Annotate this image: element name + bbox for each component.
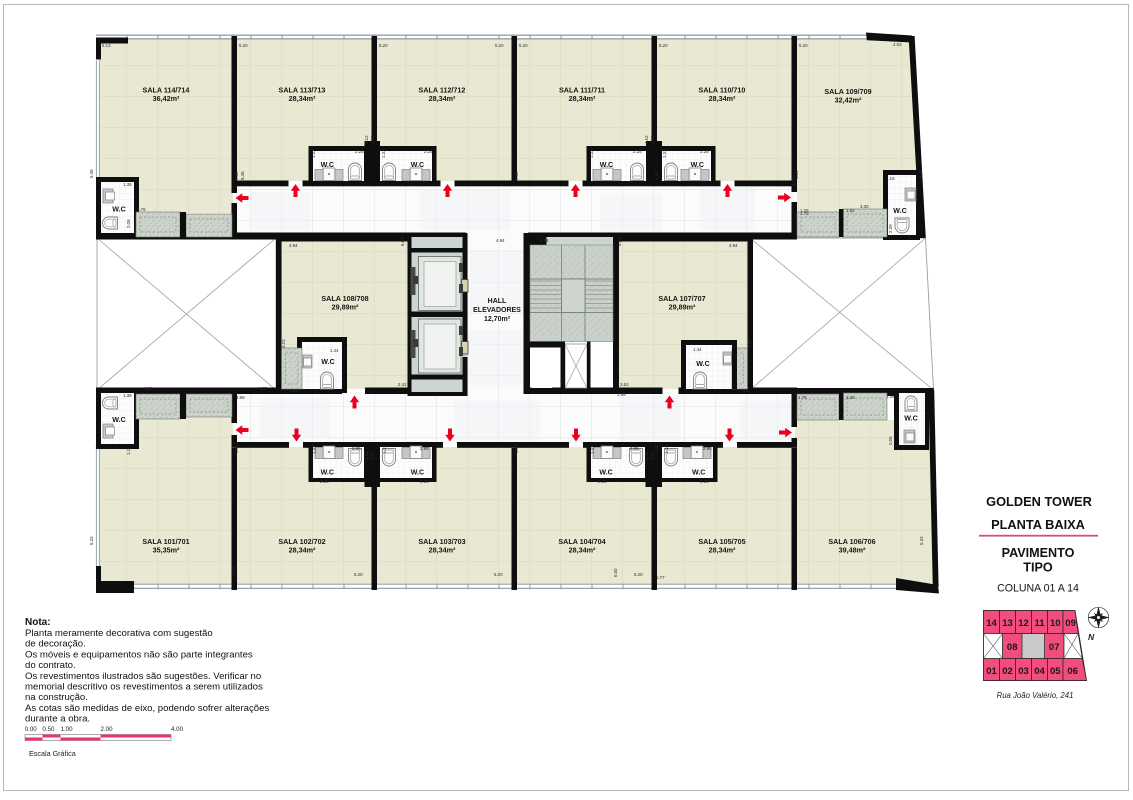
svg-text:2.25: 2.25 [700,149,709,154]
svg-text:de decoração.: de decoração. [25,639,86,650]
svg-text:W.C: W.C [321,469,334,477]
svg-text:5.77: 5.77 [656,575,665,580]
svg-text:2.00: 2.00 [101,726,114,733]
svg-text:2.42: 2.42 [398,382,407,387]
svg-text:5.20: 5.20 [379,43,388,48]
svg-text:5.33: 5.33 [919,536,924,545]
svg-text:TIPO: TIPO [1023,561,1053,575]
svg-text:6.08: 6.08 [400,237,405,246]
svg-text:do contrato.: do contrato. [25,660,76,671]
svg-text:4.12: 4.12 [644,451,649,460]
svg-text:35,35m²: 35,35m² [153,545,180,554]
svg-text:4.12: 4.12 [364,135,369,144]
svg-text:3.69: 3.69 [236,395,245,400]
svg-text:2.95: 2.95 [420,446,429,451]
svg-text:0.48: 0.48 [290,388,299,393]
svg-text:28,34m²: 28,34m² [289,94,316,103]
svg-text:13: 13 [1002,618,1013,629]
svg-text:5.35: 5.35 [89,169,94,178]
svg-text:2.20: 2.20 [846,395,855,400]
svg-text:1.00: 1.00 [61,726,74,733]
svg-text:GOLDEN TOWER: GOLDEN TOWER [986,494,1092,509]
svg-text:1.98: 1.98 [144,386,153,391]
svg-text:1.33: 1.33 [662,149,667,158]
svg-text:5.45: 5.45 [514,171,519,180]
svg-text:4.00: 4.00 [171,726,184,733]
svg-text:3.76: 3.76 [137,207,146,212]
svg-text:4.12: 4.12 [364,451,369,460]
svg-text:memorial descritivo os revesti: memorial descritivo os revestimentos a s… [25,682,263,693]
svg-text:W.C: W.C [696,360,709,368]
svg-text:29,89m²: 29,89m² [332,302,359,311]
svg-text:As cotas são medidas de eixo,: As cotas são medidas de eixo, podendo so… [25,703,269,714]
svg-text:Nota:: Nota: [25,617,51,628]
svg-text:W.C: W.C [893,207,906,215]
svg-text:5.20: 5.20 [659,43,668,48]
svg-text:5.20: 5.20 [799,43,808,48]
svg-text:05: 05 [1050,666,1061,677]
svg-text:2.25: 2.25 [424,149,433,154]
svg-text:1.20: 1.20 [126,446,131,455]
svg-text:4.26: 4.26 [791,177,796,186]
svg-text:4.02: 4.02 [893,42,902,47]
svg-text:2.62: 2.62 [620,382,629,387]
svg-text:32,42m²: 32,42m² [835,95,862,104]
svg-text:10: 10 [1050,618,1061,629]
svg-text:W.C: W.C [112,206,125,214]
svg-text:5.20: 5.20 [354,572,363,577]
svg-text:W.C: W.C [411,469,424,477]
svg-text:0.00: 0.00 [25,726,38,733]
svg-text:W.C: W.C [904,415,917,423]
svg-text:durante a obra.: durante a obra. [25,714,90,725]
svg-text:1.75: 1.75 [798,395,807,400]
svg-text:2.95: 2.95 [352,446,361,451]
svg-text:5.45: 5.45 [654,171,659,180]
svg-text:4.12: 4.12 [370,451,375,460]
svg-text:N: N [1088,632,1095,642]
svg-text:11: 11 [1034,618,1045,629]
svg-text:12: 12 [1018,618,1029,629]
svg-text:1.33: 1.33 [590,445,595,454]
svg-text:3.30: 3.30 [860,204,869,209]
svg-text:02: 02 [1002,666,1013,677]
svg-text:5.45: 5.45 [234,171,239,180]
svg-text:5.20: 5.20 [495,43,504,48]
svg-text:1.38: 1.38 [123,393,132,398]
svg-text:1.92: 1.92 [846,208,855,213]
svg-text:36,42m²: 36,42m² [153,94,180,103]
svg-text:W.C: W.C [321,358,334,366]
svg-text:5.33: 5.33 [89,536,94,545]
svg-text:W.C: W.C [692,469,705,477]
svg-text:2.08: 2.08 [126,219,131,228]
svg-text:5.45: 5.45 [234,444,239,453]
svg-text:4.12: 4.12 [650,135,655,144]
svg-text:1.33: 1.33 [381,149,386,158]
svg-text:06: 06 [1067,666,1078,677]
svg-text:4.12: 4.12 [370,135,375,144]
svg-text:4.23: 4.23 [281,339,286,348]
svg-text:03: 03 [1018,666,1029,677]
svg-text:2.95: 2.95 [703,446,712,451]
svg-text:1.33: 1.33 [664,445,669,454]
svg-text:0.68: 0.68 [740,388,749,393]
svg-text:6.08: 6.08 [617,237,622,246]
svg-text:28,34m²: 28,34m² [569,545,596,554]
svg-text:1.33: 1.33 [382,445,387,454]
svg-text:4.23: 4.23 [747,339,752,348]
svg-text:6.00: 6.00 [613,568,618,577]
svg-text:2.39: 2.39 [888,224,893,233]
svg-text:5.20: 5.20 [494,572,503,577]
svg-text:4.12: 4.12 [644,135,649,144]
svg-text:5.13: 5.13 [102,43,111,48]
svg-text:Os revestimentos ilustrados sã: Os revestimentos ilustrados são sugestõe… [25,671,261,682]
svg-text:28,34m²: 28,34m² [569,94,596,103]
svg-text:04: 04 [1034,666,1045,677]
svg-text:ELEVADORES: ELEVADORES [473,307,521,314]
svg-text:1.15: 1.15 [886,176,895,181]
svg-text:28,34m²: 28,34m² [709,545,736,554]
svg-text:2.95: 2.95 [630,446,639,451]
svg-text:4.94: 4.94 [289,243,298,248]
svg-text:1.33: 1.33 [311,149,316,158]
svg-text:1.25: 1.25 [258,386,267,391]
svg-text:12,70m²: 12,70m² [484,316,511,323]
svg-text:28,34m²: 28,34m² [289,545,316,554]
svg-text:07: 07 [1049,642,1060,653]
svg-text:1.95: 1.95 [617,392,626,397]
svg-text:14: 14 [986,618,997,629]
svg-text:39,48m²: 39,48m² [839,545,866,554]
svg-text:0.50: 0.50 [42,726,55,733]
svg-text:W.C: W.C [599,469,612,477]
svg-text:2.25: 2.25 [700,479,709,484]
svg-text:5.45: 5.45 [918,169,923,178]
svg-text:1.44: 1.44 [693,347,702,352]
svg-text:W.C: W.C [112,416,125,424]
svg-text:Planta meramente decorativa co: Planta meramente decorativa com sugestão [25,628,213,639]
svg-text:Escala Gráfica: Escala Gráfica [29,749,76,758]
svg-text:5.45: 5.45 [240,171,245,180]
svg-text:28,34m²: 28,34m² [429,545,456,554]
svg-text:4.12: 4.12 [650,451,655,460]
svg-text:1.25: 1.25 [800,208,809,213]
svg-text:4.94: 4.94 [729,243,738,248]
svg-text:2.25: 2.25 [355,149,364,154]
svg-text:1.33: 1.33 [312,445,317,454]
svg-text:28,34m²: 28,34m² [429,94,456,103]
svg-text:na construção.: na construção. [25,692,88,703]
svg-text:PAVIMENTO: PAVIMENTO [1002,546,1075,560]
svg-text:1.33: 1.33 [589,149,594,158]
svg-text:4.94: 4.94 [540,238,549,243]
svg-text:1.44: 1.44 [330,348,339,353]
svg-text:28,34m²: 28,34m² [709,94,736,103]
svg-text:1.36: 1.36 [886,394,895,399]
svg-text:29,89m²: 29,89m² [669,302,696,311]
svg-text:2.25: 2.25 [420,479,429,484]
svg-text:6.00: 6.00 [231,566,236,575]
svg-text:2.25: 2.25 [598,479,607,484]
svg-text:5.20: 5.20 [634,572,643,577]
svg-text:01: 01 [986,666,997,677]
svg-text:5.20: 5.20 [519,43,528,48]
svg-text:08: 08 [1007,642,1018,653]
svg-text:Os móveis e equipamentos não s: Os móveis e equipamentos não são parte i… [25,649,253,660]
svg-text:2.25: 2.25 [633,149,642,154]
svg-text:5.20: 5.20 [239,43,248,48]
svg-text:Rua João Valério, 241: Rua João Valério, 241 [997,691,1074,700]
svg-text:PLANTA BAIXA: PLANTA BAIXA [991,517,1085,532]
svg-text:COLUNA 01 A 14: COLUNA 01 A 14 [997,583,1079,595]
svg-text:2.25: 2.25 [320,479,329,484]
svg-text:09: 09 [1065,618,1076,629]
svg-text:HALL: HALL [488,298,507,305]
svg-text:5.45: 5.45 [514,444,519,453]
svg-text:1.39: 1.39 [123,182,132,187]
svg-text:2.08: 2.08 [888,436,893,445]
svg-text:4.94: 4.94 [496,238,505,243]
